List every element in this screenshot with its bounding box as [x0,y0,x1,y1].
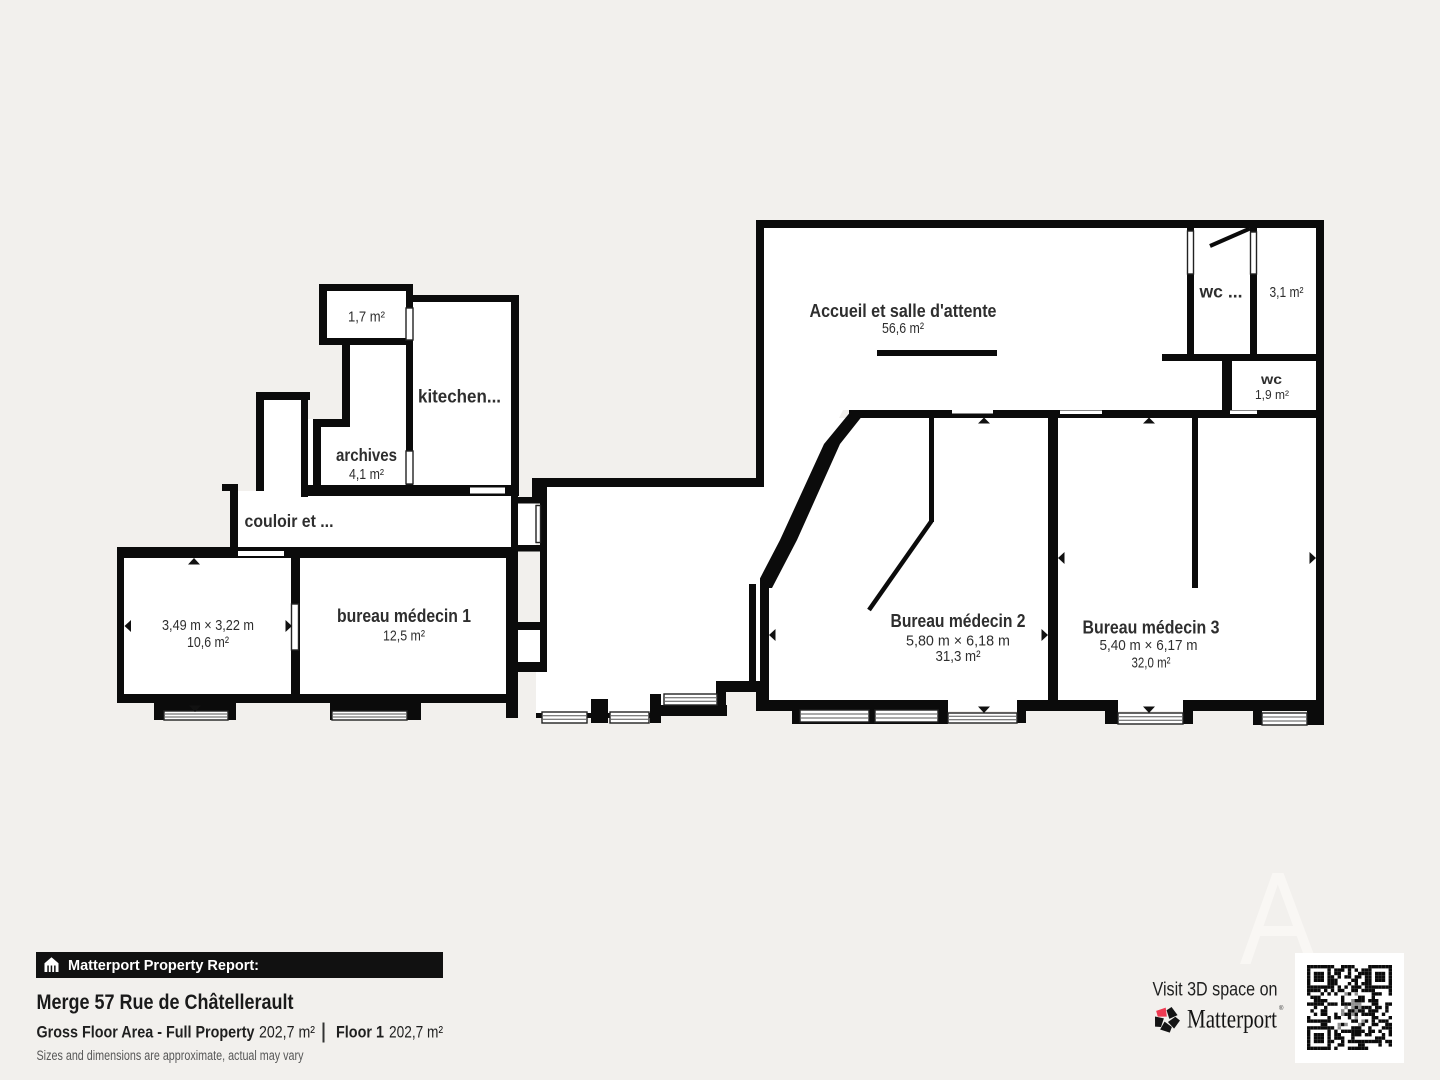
svg-text:1,7 m²: 1,7 m² [348,310,385,326]
svg-text:31,3 m²: 31,3 m² [936,648,981,665]
svg-text:12,5 m²: 12,5 m² [383,628,425,645]
svg-text:Matterport Property Report:: Matterport Property Report: [68,957,259,974]
svg-text:Gross Floor Area - Full Proper: Gross Floor Area - Full Property [37,1023,255,1042]
svg-text:56,6 m²: 56,6 m² [882,320,924,337]
svg-text:32,0 m²: 32,0 m² [1132,655,1171,672]
svg-text:Bureau médecin 2: Bureau médecin 2 [891,611,1026,631]
svg-text:Merge 57 Rue de Châtellerault: Merge 57 Rue de Châtellerault [37,990,294,1014]
svg-text:3,49 m × 3,22 m: 3,49 m × 3,22 m [162,617,254,634]
svg-text:5,80 m × 6,18 m: 5,80 m × 6,18 m [906,633,1010,650]
svg-text:5,40 m × 6,17 m: 5,40 m × 6,17 m [1100,637,1198,654]
svg-text:kitechen...: kitechen... [418,387,501,407]
svg-text:Visit 3D space on: Visit 3D space on [1153,980,1278,1001]
svg-text:wc: wc [1260,371,1282,387]
svg-text:1,9 m²: 1,9 m² [1255,387,1290,402]
svg-text:Sizes and dimensions are appro: Sizes and dimensions are approximate, ac… [37,1048,304,1063]
svg-text:202,7 m²: 202,7 m² [259,1023,315,1042]
svg-text:Bureau médecin 3: Bureau médecin 3 [1083,618,1220,638]
svg-text:Accueil et salle d'attente: Accueil et salle d'attente [810,301,997,321]
svg-text:10,6 m²: 10,6 m² [187,634,229,651]
svg-text:wc ...: wc ... [1198,282,1242,302]
svg-text:bureau médecin 1: bureau médecin 1 [337,606,471,626]
svg-text:Matterport: Matterport [1187,1005,1278,1034]
svg-text:202,7 m²: 202,7 m² [389,1023,443,1042]
svg-text:3,1 m²: 3,1 m² [1270,285,1304,301]
svg-text:couloir et ...: couloir et ... [245,511,334,531]
svg-text:4,1 m²: 4,1 m² [349,467,384,483]
svg-text:®: ® [1279,1005,1284,1012]
svg-text:archives: archives [336,445,397,465]
svg-text:Floor 1: Floor 1 [336,1023,384,1042]
